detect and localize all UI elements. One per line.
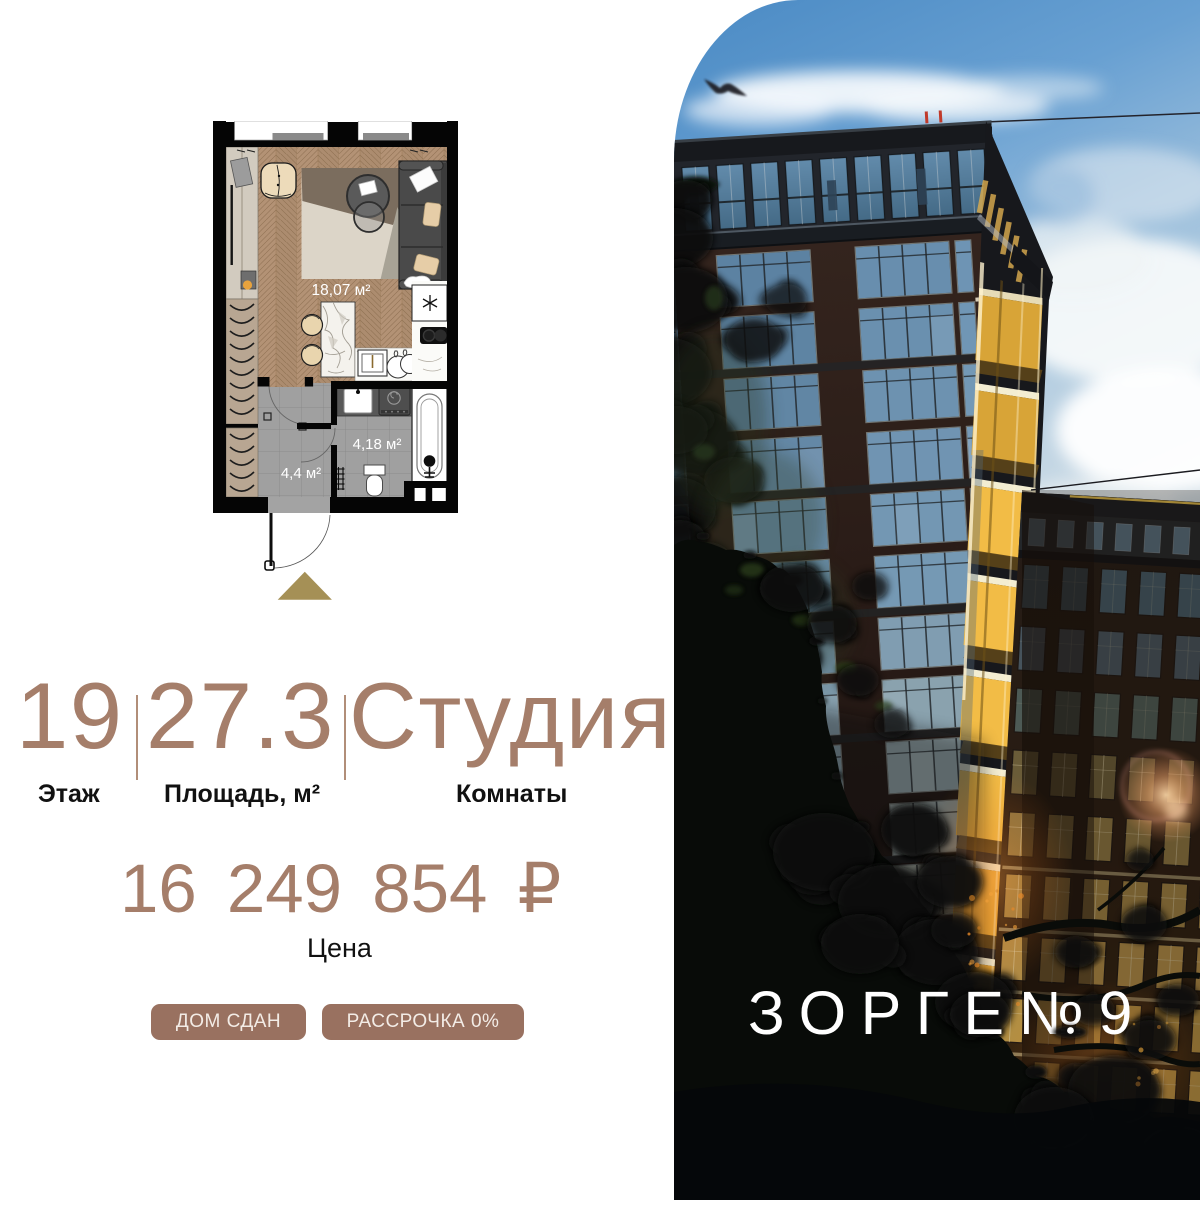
svg-text:18,07 м²: 18,07 м²	[312, 282, 371, 299]
svg-text:4,4 м²: 4,4 м²	[281, 465, 321, 482]
svg-text:4,18 м²: 4,18 м²	[353, 436, 402, 453]
svg-text:ЗОРГЕ№9: ЗОРГЕ№9	[748, 979, 1147, 1047]
